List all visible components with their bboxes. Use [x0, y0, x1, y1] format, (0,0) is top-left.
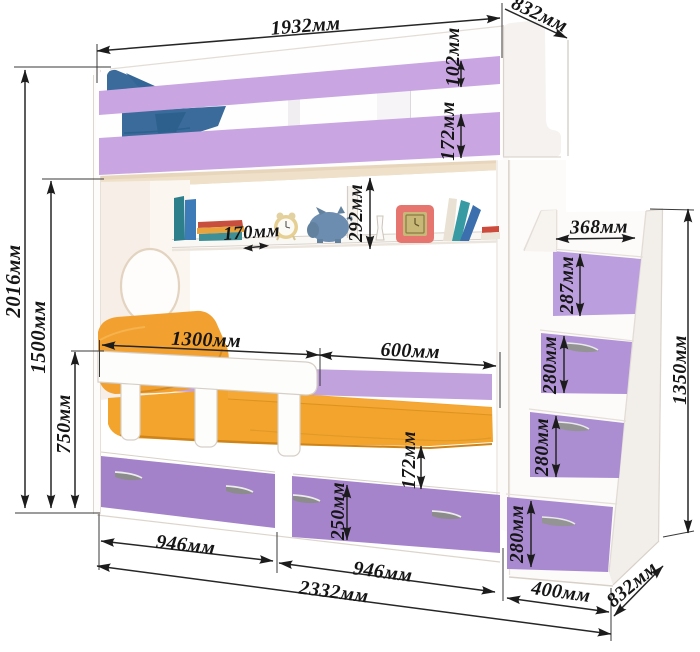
svg-text:280мм: 280мм: [540, 336, 561, 395]
svg-text:368мм: 368мм: [569, 216, 628, 238]
svg-text:2016мм: 2016мм: [1, 244, 25, 318]
svg-text:1500мм: 1500мм: [26, 300, 50, 373]
svg-text:1350мм: 1350мм: [669, 335, 691, 405]
svg-text:292мм: 292мм: [346, 184, 367, 243]
svg-text:280мм: 280мм: [532, 418, 553, 477]
svg-text:172мм: 172мм: [399, 431, 420, 489]
svg-text:287мм: 287мм: [557, 256, 578, 315]
svg-text:170мм: 170мм: [223, 220, 281, 245]
svg-text:1300мм: 1300мм: [171, 328, 242, 352]
svg-text:280мм: 280мм: [507, 505, 528, 564]
svg-text:172мм: 172мм: [437, 101, 459, 160]
svg-text:750мм: 750мм: [53, 394, 75, 453]
svg-text:102мм: 102мм: [442, 27, 464, 86]
svg-text:250мм: 250мм: [328, 482, 349, 541]
svg-text:600мм: 600мм: [380, 339, 440, 364]
